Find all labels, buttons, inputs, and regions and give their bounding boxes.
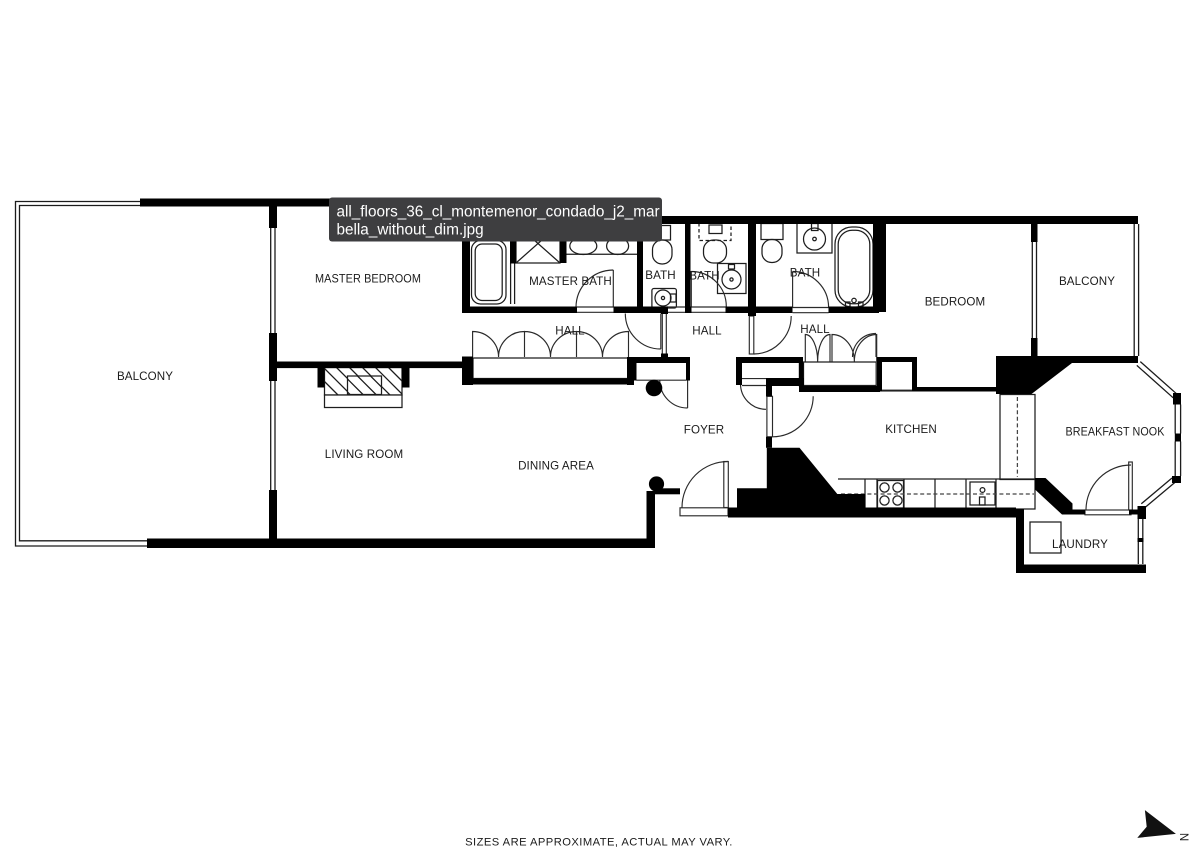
svg-text:N: N [1177, 833, 1189, 841]
svg-text:MASTER BEDROOM: MASTER BEDROOM [315, 273, 421, 286]
svg-text:HALL: HALL [800, 323, 830, 336]
svg-text:SIZES ARE APPROXIMATE, ACTUAL: SIZES ARE APPROXIMATE, ACTUAL MAY VARY. [465, 837, 733, 849]
svg-text:BALCONY: BALCONY [117, 370, 173, 383]
svg-text:FOYER: FOYER [684, 424, 724, 437]
svg-text:BATH: BATH [790, 267, 820, 280]
svg-text:all_floors_36_cl_montemenor_co: all_floors_36_cl_montemenor_condado_j2_m… [337, 204, 660, 221]
svg-text:bella_without_dim.jpg: bella_without_dim.jpg [337, 222, 484, 239]
svg-text:HALL: HALL [555, 325, 585, 338]
svg-text:BEDROOM: BEDROOM [925, 296, 986, 309]
svg-text:DINING AREA: DINING AREA [518, 460, 594, 473]
svg-text:MASTER BATH: MASTER BATH [529, 275, 612, 288]
svg-text:HALL: HALL [692, 325, 722, 338]
svg-text:KITCHEN: KITCHEN [885, 423, 937, 436]
svg-text:BATH: BATH [645, 269, 675, 282]
svg-text:BREAKFAST NOOK: BREAKFAST NOOK [1066, 426, 1165, 439]
svg-text:LIVING ROOM: LIVING ROOM [325, 448, 403, 461]
svg-text:BATH: BATH [689, 270, 719, 283]
svg-text:BALCONY: BALCONY [1059, 275, 1115, 288]
svg-text:LAUNDRY: LAUNDRY [1052, 538, 1108, 551]
